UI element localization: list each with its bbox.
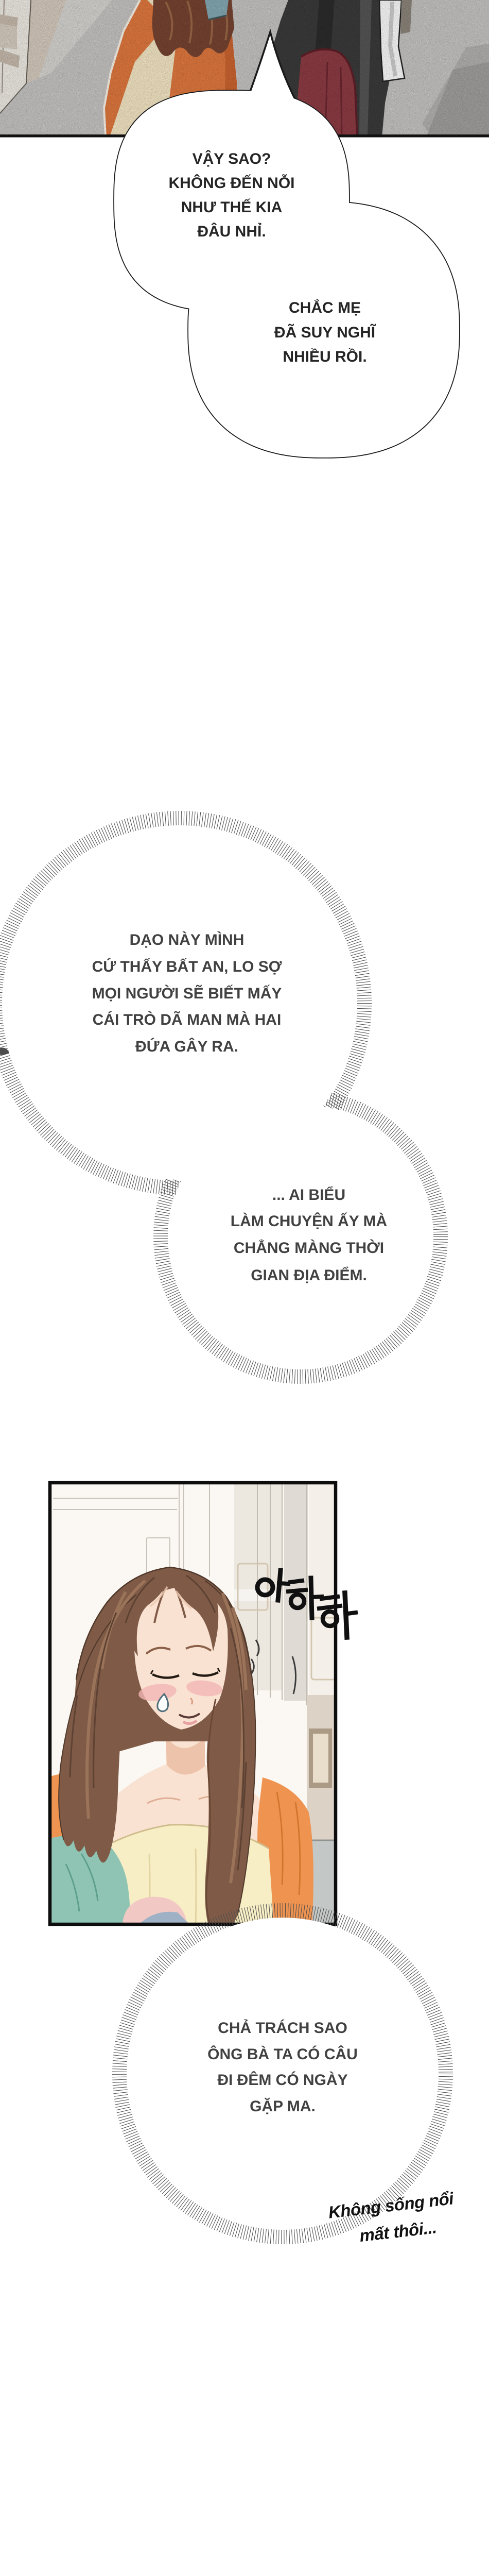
svg-text:ĐI ĐÊM CÓ NGÀY: ĐI ĐÊM CÓ NGÀY [217,2071,347,2089]
svg-text:CHẢ TRÁCH SAO: CHẢ TRÁCH SAO [218,2019,347,2037]
svg-text:CHẮC MẸ: CHẮC MẸ [289,299,361,316]
svg-text:VẬY SAO?: VẬY SAO? [193,150,271,167]
svg-text:MỌI NGƯỜI SẼ BIẾT MẤY: MỌI NGƯỜI SẼ BIẾT MẤY [92,985,282,1002]
svg-text:NHƯ THẾ KIA: NHƯ THẾ KIA [181,198,283,216]
svg-text:DẠO NÀY MÌNH: DẠO NÀY MÌNH [130,931,244,948]
svg-text:ĐÂU NHỈ.: ĐÂU NHỈ. [197,223,266,240]
svg-text:GẶP MA.: GẶP MA. [250,2097,316,2115]
svg-text:KHÔNG ĐẾN NỖI: KHÔNG ĐẾN NỖI [168,174,294,192]
svg-text:CHẲNG MÀNG THỜI: CHẲNG MÀNG THỜI [234,1239,384,1257]
svg-text:ĐỨA GÂY RA.: ĐỨA GÂY RA. [135,1038,238,1055]
svg-text:ÔNG BÀ TA CÓ CÂU: ÔNG BÀ TA CÓ CÂU [207,2045,358,2063]
svg-text:CÁI TRÒ DÃ MAN MÀ HAI: CÁI TRÒ DÃ MAN MÀ HAI [93,1011,282,1028]
svg-text:mất thôi...: mất thôi... [358,2217,438,2245]
svg-text:... AI BIỂU: ... AI BIỂU [272,1186,345,1204]
svg-text:GIAN ĐỊA ĐIỂM.: GIAN ĐỊA ĐIỂM. [251,1266,367,1284]
svg-text:NHIỀU RỒI.: NHIỀU RỒI. [283,348,366,365]
svg-text:LÀM CHUYỆN ẤY MÀ: LÀM CHUYỆN ẤY MÀ [231,1212,387,1230]
svg-text:ĐÃ SUY NGHĨ: ĐÃ SUY NGHĨ [274,324,376,341]
svg-text:CỨ THẤY BẤT AN, LO SỢ: CỨ THẤY BẤT AN, LO SỢ [92,958,282,975]
